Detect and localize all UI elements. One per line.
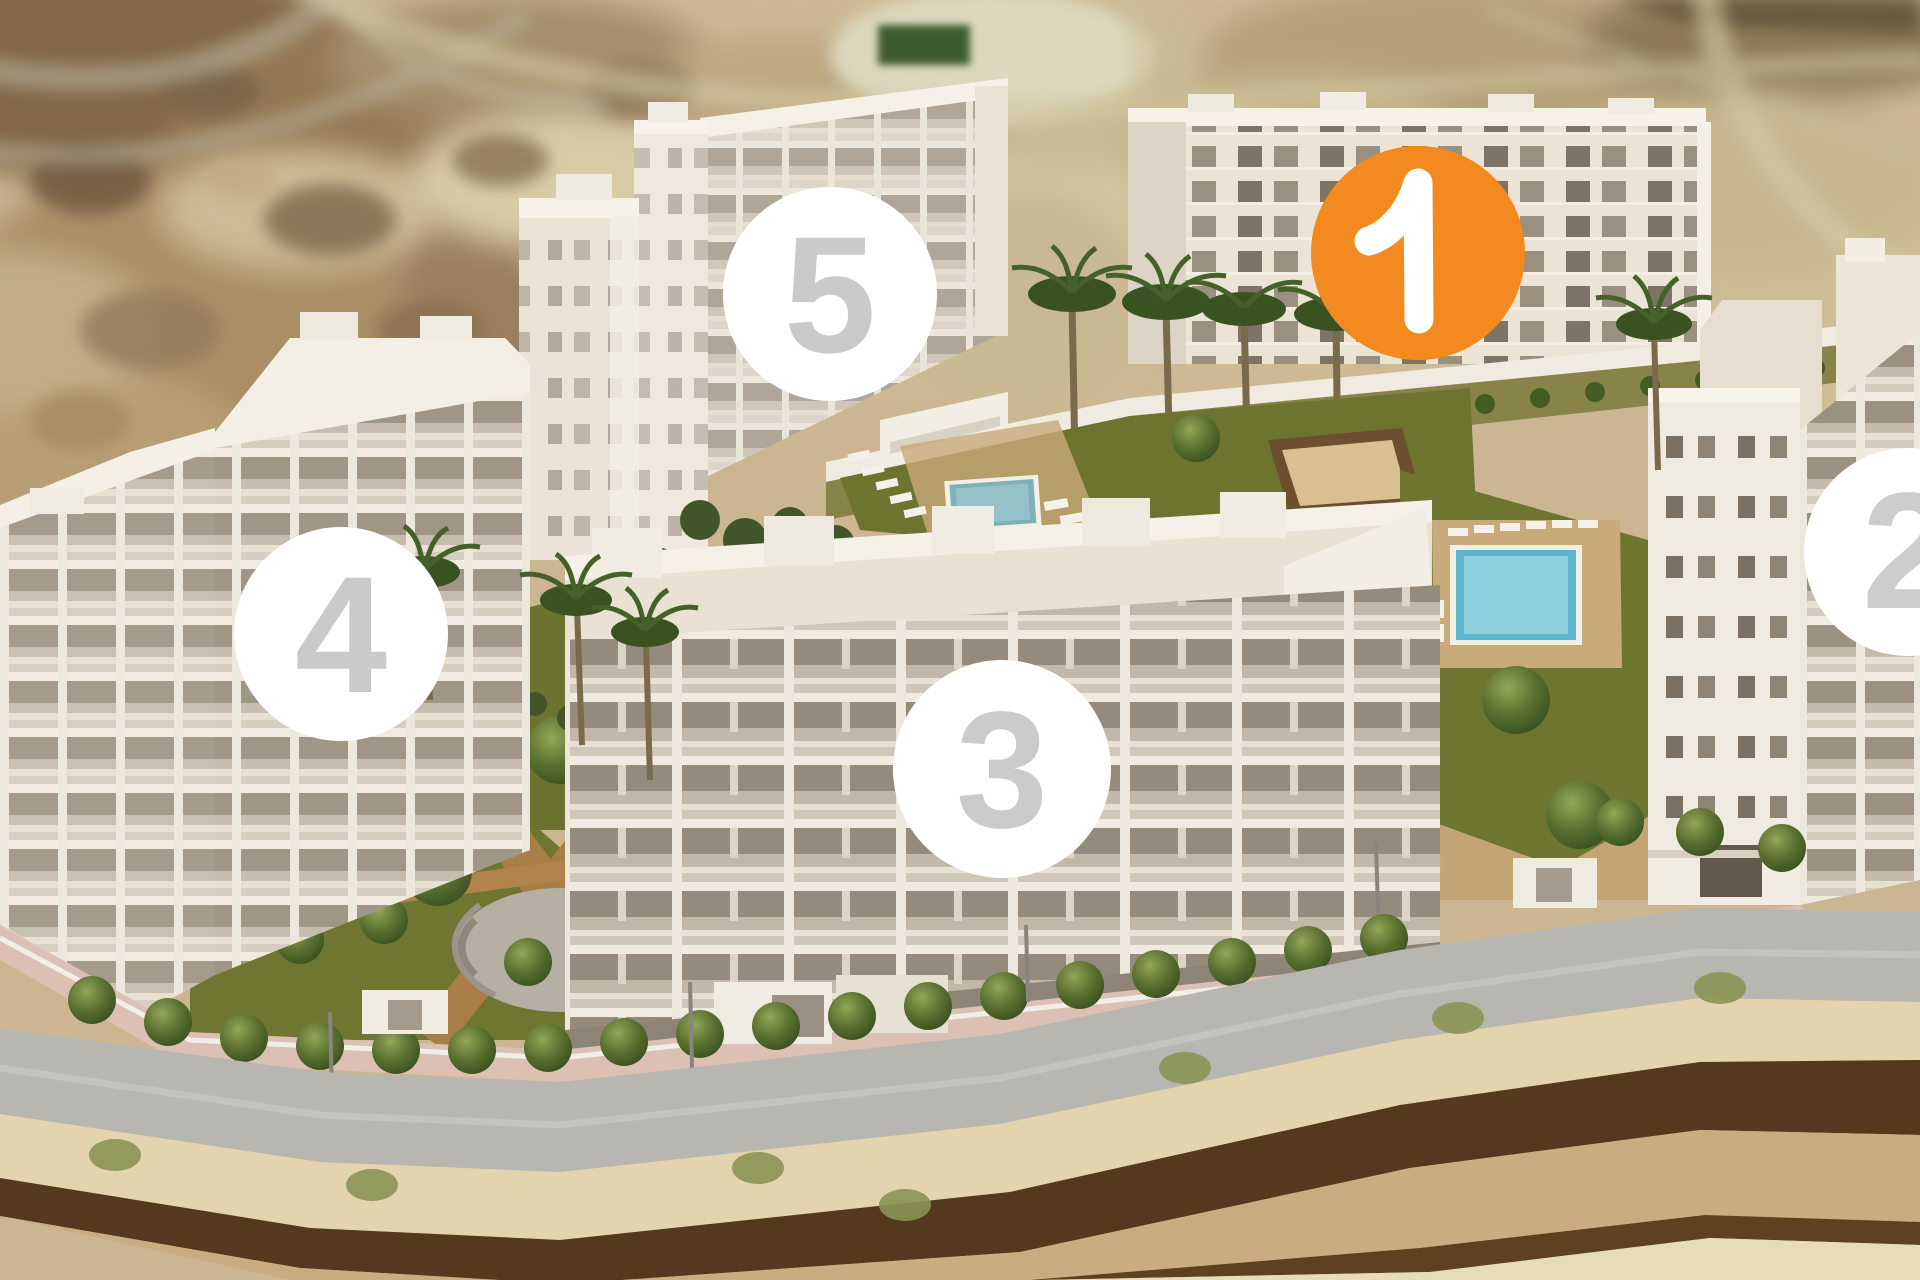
svg-text:3: 3 (956, 678, 1048, 863)
svg-text:5: 5 (784, 203, 876, 388)
svg-text:2: 2 (1862, 459, 1920, 644)
svg-text:4: 4 (295, 543, 387, 728)
